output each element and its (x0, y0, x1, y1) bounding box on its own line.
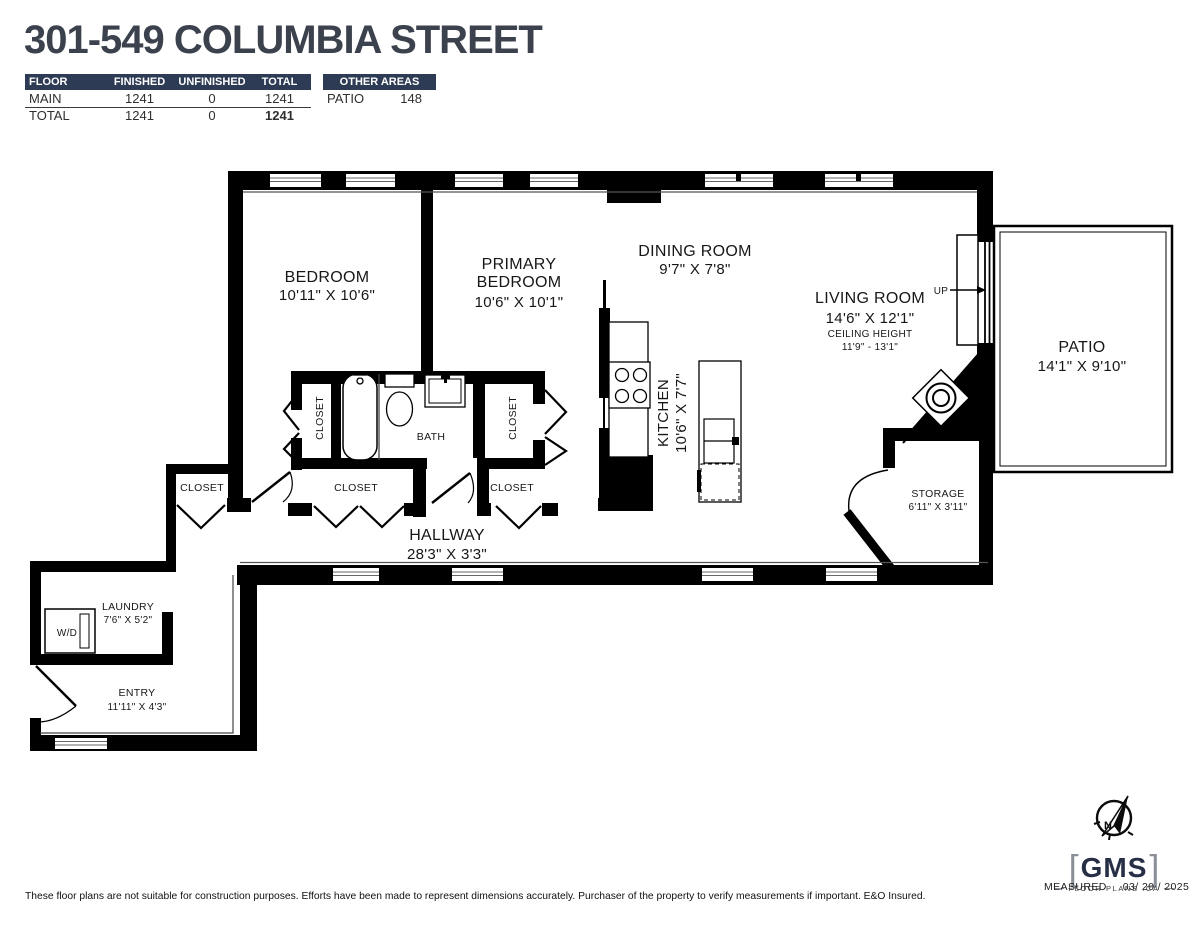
room-label-primary-1: PRIMARY (482, 256, 557, 273)
floorplan-drawing: BEDROOM 10'11" X 10'6" PRIMARY BEDROOM 1… (0, 0, 1200, 927)
room-dims-living: 14'6" X 12'1" (826, 310, 915, 327)
room-dims-bedroom: 10'11" X 10'6" (279, 287, 375, 304)
closet-label-right-lower: CLOSET (490, 482, 534, 494)
floorplan-page: 301-549 COLUMBIA STREET FLOOR FINISHED U… (0, 0, 1200, 927)
room-label-kitchen: KITCHEN (655, 379, 672, 447)
stairs-up (950, 235, 990, 345)
room-label-bath: BATH (417, 431, 445, 443)
bracket-left: [ (1069, 852, 1079, 884)
wall-column (607, 189, 661, 203)
room-label-living: LIVING ROOM (815, 290, 925, 307)
room-dims-entry: 11'11" X 4'3" (108, 702, 167, 713)
room-dims-dining: 9'7" X 7'8" (659, 261, 730, 278)
room-dims-storage: 6'11" X 3'11" (909, 502, 968, 513)
room-dims-primary: 10'6" X 10'1" (475, 294, 564, 311)
closet-label-left: CLOSET (180, 482, 224, 494)
up-label: UP (934, 286, 949, 297)
bracket-right: ] (1149, 852, 1159, 884)
measured-label: MEASURED (1044, 881, 1107, 893)
measured-date: 03/ 20 / 2025 (1123, 881, 1190, 893)
bathtub (343, 374, 377, 460)
measured-line: MEASURED 03/ 20 / 2025 (1044, 881, 1189, 893)
gms-text: GMS (1079, 854, 1150, 882)
room-label-kitchen-group: KITCHEN 10'6" X 7'7" (655, 373, 690, 453)
bath-fixtures (343, 371, 465, 460)
closet-label-vertical-left: CLOSET (314, 396, 326, 440)
washer-dryer-label: W/D (57, 628, 77, 639)
compass-icon: N (1086, 788, 1142, 850)
sink-faucet (441, 371, 450, 379)
closet-label-vertical-right: CLOSET (507, 396, 519, 440)
storage-door-arc (849, 470, 888, 511)
room-label-laundry: LAUNDRY (102, 601, 154, 613)
room-dims-hallway: 28'3" X 3'3" (407, 546, 487, 563)
room-label-hallway: HALLWAY (409, 527, 485, 544)
room-dims-patio: 14'1" X 9'10" (1038, 358, 1127, 375)
toilet-bowl (387, 392, 413, 426)
room-label-storage: STORAGE (911, 488, 964, 500)
island-faucet (732, 437, 739, 445)
toilet-tank (385, 374, 414, 387)
room-label-bedroom: BEDROOM (285, 269, 370, 286)
ceiling-height-label: CEILING HEIGHT (828, 329, 913, 340)
room-label-patio: PATIO (1058, 339, 1105, 356)
gms-logo: N [ GMS ] FLOOR PLANS .CA (1052, 788, 1176, 893)
gms-wordmark: [ GMS ] (1069, 852, 1160, 884)
closet-label-middle: CLOSET (334, 482, 378, 494)
ceiling-height-dims: 11'9" - 13'1" (842, 342, 898, 353)
room-label-entry: ENTRY (119, 687, 156, 699)
disclaimer-text: These floor plans are not suitable for c… (25, 891, 925, 902)
room-dims-kitchen: 10'6" X 7'7" (673, 373, 690, 453)
room-dims-laundry: 7'6" X 5'2" (104, 615, 153, 626)
room-label-dining: DINING ROOM (638, 243, 752, 260)
room-label-primary-2: BEDROOM (477, 274, 562, 291)
compass-n-letter: N (1104, 820, 1112, 832)
